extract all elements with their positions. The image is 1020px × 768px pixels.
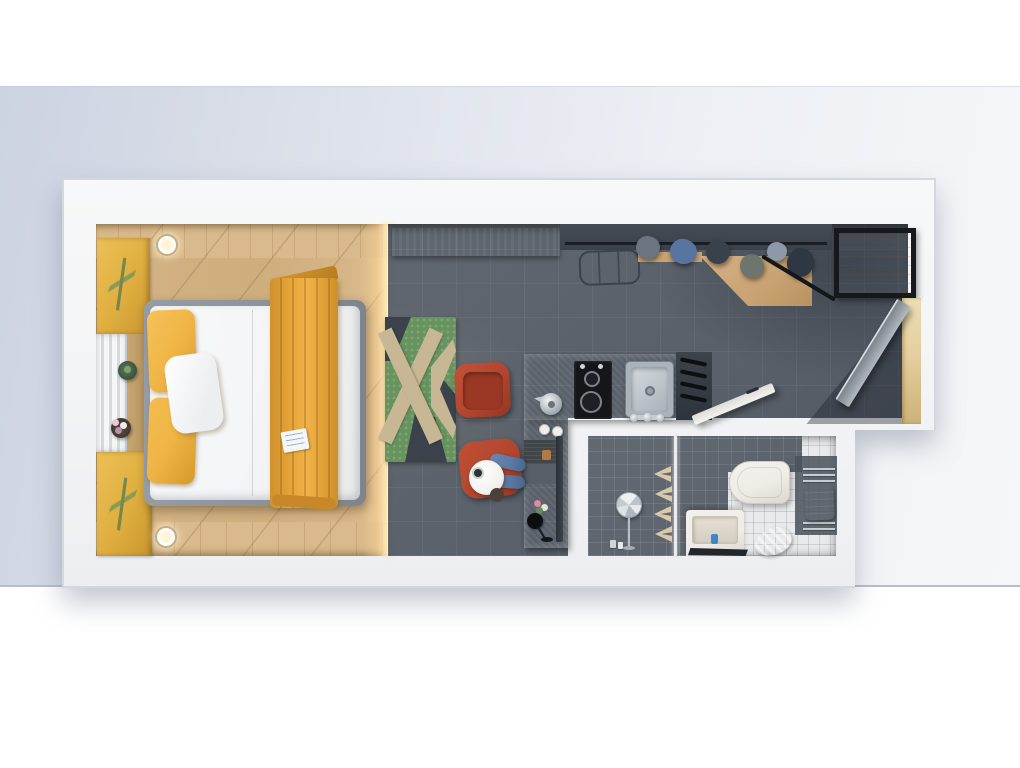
hanger-rail <box>565 242 827 245</box>
console-table <box>834 228 916 298</box>
suitcase <box>578 249 640 286</box>
hanging-clothes <box>636 236 660 259</box>
laptop <box>524 440 556 464</box>
counter-edge-bar <box>556 436 563 542</box>
lit-door-jamb <box>902 298 921 424</box>
x-pattern-rug <box>385 317 456 462</box>
menu-card <box>280 428 309 453</box>
yellow-throw-blanket <box>270 278 338 508</box>
burner-small <box>584 371 600 387</box>
faucet-spout <box>643 413 652 422</box>
shampoo-bottle <box>618 542 623 549</box>
kettle-lid <box>548 401 555 408</box>
floorplan-render <box>0 0 1020 768</box>
apartment <box>62 178 936 588</box>
wall-tv-panel <box>392 228 560 256</box>
soap-bottle <box>711 534 718 544</box>
cooktop-knob <box>598 364 603 369</box>
towel-radiator-bar <box>803 522 835 524</box>
white-towel <box>804 486 834 521</box>
coffee-cup <box>539 424 550 435</box>
burner-large <box>580 391 602 413</box>
towel-radiator-bar <box>803 528 835 530</box>
throw-blanket-creases <box>270 278 338 508</box>
knife-slat <box>680 369 707 379</box>
faucet-handle <box>630 414 638 422</box>
duvet-seam <box>252 310 253 496</box>
faucet-handle <box>656 414 664 422</box>
ceiling-light-top <box>158 236 176 254</box>
person-hair <box>490 488 504 502</box>
leaf-artwork <box>103 256 138 312</box>
hanging-clothes <box>706 240 730 264</box>
toilet-seat-line <box>737 467 782 498</box>
towel-radiator-bar <box>803 468 835 470</box>
shower-glass-partition <box>674 436 677 556</box>
white-pillow <box>163 351 225 435</box>
small-flowers <box>534 500 541 507</box>
held-cup <box>472 467 484 479</box>
ceiling-light-bottom <box>157 528 175 546</box>
sink-drain <box>645 386 655 396</box>
flower-blossom <box>115 427 122 434</box>
towel-radiator-bar <box>803 480 835 482</box>
notebook <box>542 450 551 460</box>
knife-slat <box>680 393 707 403</box>
wine-glass-foot <box>541 537 553 542</box>
wall-art-panel-top <box>97 238 150 334</box>
knife-slat <box>680 357 707 367</box>
knife-slat <box>680 381 707 391</box>
armchair-seat <box>463 372 503 410</box>
cooktop-knob <box>580 364 585 369</box>
mirror-stand <box>628 518 630 546</box>
shampoo-bottle <box>610 540 616 548</box>
round-shower-mirror <box>616 492 642 518</box>
leaf-artwork <box>104 476 139 532</box>
towel-radiator-bar <box>803 474 835 476</box>
mirror-base <box>623 546 635 550</box>
black-wine-glass <box>527 513 543 529</box>
flower-blossom <box>112 419 119 426</box>
cactus-highlight <box>124 366 131 373</box>
